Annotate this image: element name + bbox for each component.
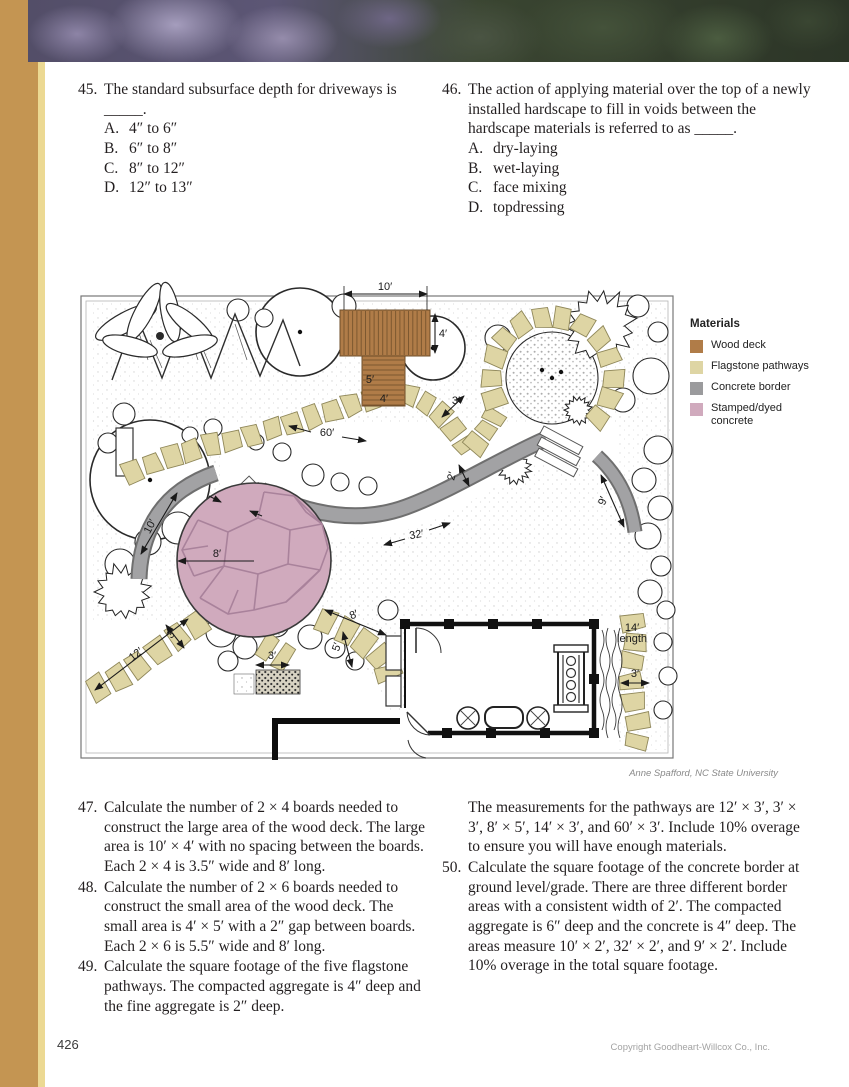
dimension-label: 60′	[320, 427, 334, 439]
legend-item: Wood deck	[690, 339, 815, 353]
question-column: 46.The action of applying material over …	[442, 80, 814, 219]
choice-letter: D.	[468, 198, 493, 218]
legend-swatch	[690, 382, 703, 395]
plant	[659, 667, 677, 685]
plant	[273, 443, 291, 461]
question-body: The measurements for the pathways are 12…	[468, 798, 814, 857]
question-text: The standard subsurface depth for drivew…	[104, 80, 430, 119]
choice-text: wet-laying	[493, 159, 559, 179]
question-body: Calculate the square footage of the conc…	[468, 858, 814, 976]
plant	[644, 436, 672, 464]
choice-letter: B.	[468, 159, 493, 179]
question-number: 46.	[442, 80, 468, 218]
dimension-label: 32′	[408, 528, 424, 542]
question-text: Calculate the square footage of the five…	[104, 957, 430, 1016]
choice: D.topdressing	[468, 198, 814, 218]
dimension-label: 5′	[366, 374, 374, 386]
question-column: 45.The standard subsurface depth for dri…	[78, 80, 430, 219]
plant	[638, 580, 662, 604]
question-number: 47.	[78, 798, 104, 877]
question-number: 45.	[78, 80, 104, 198]
question: 45.The standard subsurface depth for dri…	[78, 80, 430, 198]
landscape-plan-figure: 10′4′5′4′3′60′2′32′9′10′8′12′3′3′8′5′14′…	[78, 280, 778, 780]
plant	[378, 600, 398, 620]
plant	[633, 358, 669, 394]
choice-letter: C.	[468, 178, 493, 198]
question-body: Calculate the number of 2 × 4 boards nee…	[104, 798, 430, 877]
question: 47.Calculate the number of 2 × 4 boards …	[78, 798, 430, 877]
materials-legend: Materials Wood deckFlagstone pathwaysCon…	[690, 318, 815, 434]
plant	[359, 477, 377, 495]
choice: A.4″ to 6″	[104, 119, 430, 139]
textbook-page: 45.The standard subsurface depth for dri…	[0, 0, 849, 1087]
question: 46.The action of applying material over …	[442, 80, 814, 218]
legend-label: Concrete border	[711, 381, 791, 395]
dimension-label: 3′	[268, 650, 276, 662]
question: 48.Calculate the number of 2 × 6 boards …	[78, 878, 430, 957]
dimension-label: 4′	[380, 393, 388, 405]
choice: D.12″ to 13″	[104, 178, 430, 198]
question: The measurements for the pathways are 12…	[442, 798, 814, 857]
legend-title: Materials	[690, 318, 815, 330]
question-body: The standard subsurface depth for drivew…	[104, 80, 430, 198]
choice-text: 6″ to 8″	[129, 139, 177, 159]
question-column: 47.Calculate the number of 2 × 4 boards …	[78, 798, 430, 1017]
legend-label: Wood deck	[711, 339, 766, 353]
choice-text: topdressing	[493, 198, 564, 218]
choice: A.dry-laying	[468, 139, 814, 159]
question-body: Calculate the square footage of the five…	[104, 957, 430, 1016]
choice-text: face mixing	[493, 178, 567, 198]
question-number: 48.	[78, 878, 104, 957]
dimension-label: 3′	[631, 668, 639, 680]
question-body: The action of applying material over the…	[468, 80, 814, 218]
choice-letter: A.	[468, 139, 493, 159]
dimension-label: 8′	[213, 548, 221, 560]
question: 49.Calculate the square footage of the f…	[78, 957, 430, 1016]
plant	[113, 403, 135, 425]
planting-bed	[256, 670, 300, 694]
plant	[227, 299, 249, 321]
left-margin-stripe	[0, 0, 38, 1087]
question-text: Calculate the number of 2 × 6 boards nee…	[104, 878, 430, 957]
legend-item: Concrete border	[690, 381, 815, 395]
legend-swatch	[690, 340, 703, 353]
questions-bottom: 47.Calculate the number of 2 × 4 boards …	[78, 798, 814, 1017]
plant	[98, 433, 118, 453]
plant	[654, 701, 672, 719]
dimension-label: 3′	[452, 395, 460, 407]
landscape-plan: 10′4′5′4′3′60′2′32′9′10′8′12′3′3′8′5′14′…	[78, 280, 678, 780]
question-text: The measurements for the pathways are 12…	[468, 798, 814, 857]
question-text: Calculate the square footage of the conc…	[468, 858, 814, 976]
legend-label: Stamped/dyed concrete	[711, 402, 815, 427]
plant	[627, 295, 649, 317]
question-text: The action of applying material over the…	[468, 80, 814, 139]
plant	[654, 633, 672, 651]
plant	[651, 556, 671, 576]
choice-letter: C.	[104, 159, 129, 179]
question-number	[442, 798, 468, 857]
question-body: Calculate the number of 2 × 6 boards nee…	[104, 878, 430, 957]
plant	[648, 496, 672, 520]
plant	[657, 601, 675, 619]
plant	[218, 651, 238, 671]
legend-label: Flagstone pathways	[711, 360, 809, 374]
plant	[331, 473, 349, 491]
left-margin-stripe-inner	[38, 0, 45, 1087]
question-number: 50.	[442, 858, 468, 976]
figure-credit: Anne Spafford, NC State University	[629, 768, 778, 779]
page-number: 426	[57, 1037, 79, 1052]
choice: C.8″ to 12″	[104, 159, 430, 179]
choice-letter: D.	[104, 178, 129, 198]
copyright-line: Copyright Goodheart-Willcox Co., Inc.	[611, 1042, 770, 1053]
choice-letter: B.	[104, 139, 129, 159]
plant	[648, 322, 668, 342]
choice: B.6″ to 8″	[104, 139, 430, 159]
choice: C.face mixing	[468, 178, 814, 198]
question-number: 49.	[78, 957, 104, 1016]
header-photo	[28, 0, 849, 62]
plant	[255, 309, 273, 327]
choice-text: 4″ to 6″	[129, 119, 177, 139]
choice-letter: A.	[104, 119, 129, 139]
legend-item: Flagstone pathways	[690, 360, 815, 374]
plant	[632, 468, 656, 492]
question: 50.Calculate the square footage of the c…	[442, 858, 814, 976]
dimension-label: length	[617, 633, 647, 645]
legend-swatch	[690, 403, 703, 416]
stamped-concrete-circle	[177, 483, 331, 637]
choice-text: dry-laying	[493, 139, 558, 159]
choice: B.wet-laying	[468, 159, 814, 179]
question-column: The measurements for the pathways are 12…	[442, 798, 814, 1017]
choice-text: 12″ to 13″	[129, 178, 193, 198]
dimension-label: 10′	[378, 281, 392, 293]
legend-swatch	[690, 361, 703, 374]
plant	[302, 464, 324, 486]
dimension-label: 4′	[439, 328, 447, 340]
choice-text: 8″ to 12″	[129, 159, 185, 179]
legend-item: Stamped/dyed concrete	[690, 402, 815, 427]
question-text: Calculate the number of 2 × 4 boards nee…	[104, 798, 430, 877]
questions-top: 45.The standard subsurface depth for dri…	[78, 80, 814, 219]
